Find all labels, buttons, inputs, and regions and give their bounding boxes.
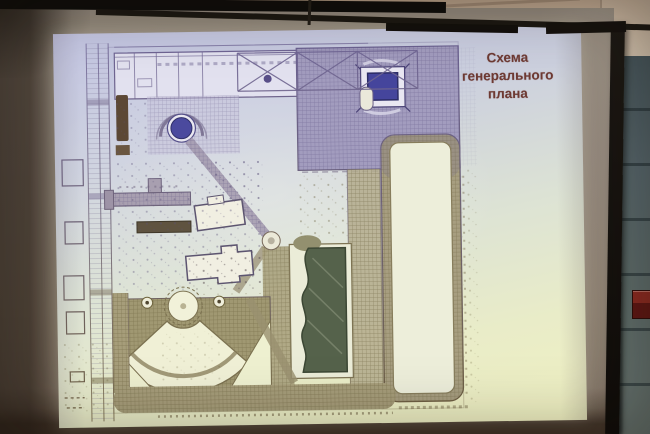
photo: Схема генерального плана [0, 0, 650, 434]
slide: Схема генерального плана [53, 26, 587, 428]
round-fountain [171, 118, 192, 139]
sports-field [381, 134, 467, 402]
screen-top-cap [546, 21, 626, 34]
alarm-box [632, 290, 650, 319]
pond-garden [289, 235, 353, 379]
landscape-pond [300, 248, 347, 373]
site-plan-drawing [57, 36, 483, 425]
site-plan [57, 36, 483, 425]
